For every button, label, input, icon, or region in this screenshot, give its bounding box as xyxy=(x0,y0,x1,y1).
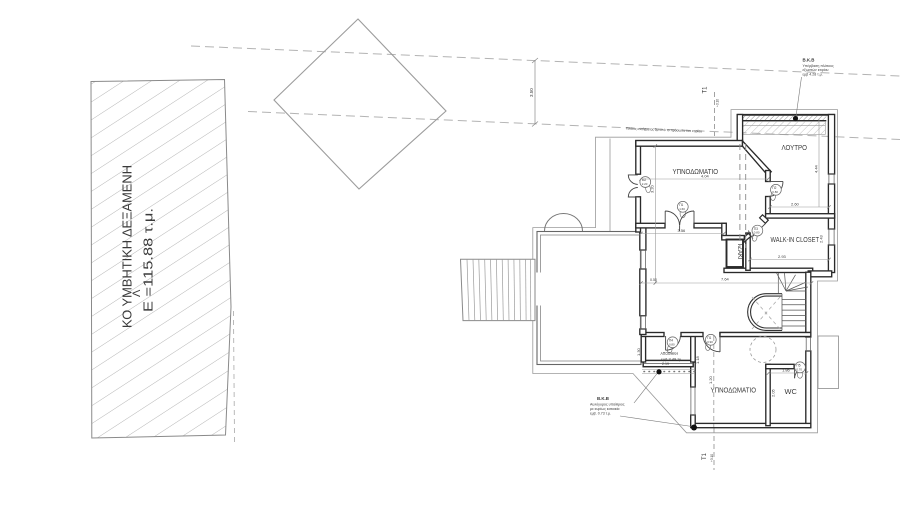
svg-text:0.80: 0.80 xyxy=(772,190,778,194)
svg-text:0.80: 0.80 xyxy=(754,231,760,235)
svg-text:ΥΠΝΟΔΩΜΑΤΙΟ: ΥΠΝΟΔΩΜΑΤΙΟ xyxy=(711,386,757,395)
svg-text:1.18: 1.18 xyxy=(695,355,700,364)
svg-text:Τ1: Τ1 xyxy=(703,86,709,94)
svg-text:Ε =115.88 τ.μ.: Ε =115.88 τ.μ. xyxy=(142,208,156,312)
svg-text:Υπέρβαση πλάτους: Υπέρβαση πλάτους xyxy=(803,64,835,68)
svg-text:2.60: 2.60 xyxy=(791,201,800,206)
svg-text:2.19: 2.19 xyxy=(662,362,669,366)
svg-text:εξωστών κτιρίου: εξωστών κτιρίου xyxy=(803,68,829,72)
svg-text:Β.Κ.Β: Β.Κ.Β xyxy=(803,58,815,63)
svg-text:Αυλόγυρος υπαίθριος: Αυλόγυρος υπαίθριος xyxy=(590,403,625,407)
svg-text:με κυρίως κατοικία: με κυρίως κατοικία xyxy=(590,407,619,411)
svg-text:3.56: 3.56 xyxy=(678,228,687,233)
svg-text:ΑΠΟΘΗΚΗ: ΑΠΟΘΗΚΗ xyxy=(661,351,679,356)
svg-text:+3.10: +3.10 xyxy=(710,454,714,462)
svg-text:2.20: 2.20 xyxy=(642,182,648,186)
svg-text:ΛΟΥΤΡΟ: ΛΟΥΤΡΟ xyxy=(782,143,808,152)
svg-text:3.50: 3.50 xyxy=(529,88,534,97)
svg-text:1.86: 1.86 xyxy=(782,368,791,373)
svg-text:εμβ 3.49 τμ: εμβ 3.49 τμ xyxy=(661,357,682,362)
svg-text:1.60: 1.60 xyxy=(679,207,685,211)
svg-text:4.04: 4.04 xyxy=(701,174,710,179)
svg-text:WC: WC xyxy=(785,387,798,396)
svg-text:Β.Κ.Β: Β.Κ.Β xyxy=(597,396,609,401)
svg-text:0.90: 0.90 xyxy=(707,340,713,344)
svg-text:εμβ. 0.73 τ.μ.: εμβ. 0.73 τ.μ. xyxy=(590,412,611,416)
svg-text:WALK-IN CLOSET: WALK-IN CLOSET xyxy=(771,237,820,244)
svg-text:1.30: 1.30 xyxy=(636,347,641,356)
svg-text:0.70: 0.70 xyxy=(796,367,802,371)
svg-text:ΥΠΝΟΔΩΜΑΤΙΟ: ΥΠΝΟΔΩΜΑΤΙΟ xyxy=(673,167,719,176)
svg-text:ΤΖΑΚΙ: ΤΖΑΚΙ xyxy=(736,243,742,260)
svg-text:3.20: 3.20 xyxy=(649,184,654,193)
svg-text:2.05: 2.05 xyxy=(770,388,775,397)
svg-text:7.64: 7.64 xyxy=(721,276,730,281)
svg-text:2.43: 2.43 xyxy=(819,234,824,243)
svg-text:εμβ 4.28 τ.μ.: εμβ 4.28 τ.μ. xyxy=(803,73,823,77)
svg-text:+3.10: +3.10 xyxy=(716,99,720,107)
svg-text:Τ1: Τ1 xyxy=(702,452,708,460)
svg-text:1.20: 1.20 xyxy=(708,375,713,384)
svg-text:2.93: 2.93 xyxy=(778,254,787,259)
svg-text:4.44: 4.44 xyxy=(813,164,818,173)
svg-text:ΚΟ ΥΜΒΗΤΙΚΗ ΔΕΞΑΜΕΝΗ: ΚΟ ΥΜΒΗΤΙΚΗ ΔΕΞΑΜΕΝΗ xyxy=(121,165,135,328)
svg-text:0.80: 0.80 xyxy=(669,342,675,346)
svg-text:0.50: 0.50 xyxy=(650,278,657,282)
